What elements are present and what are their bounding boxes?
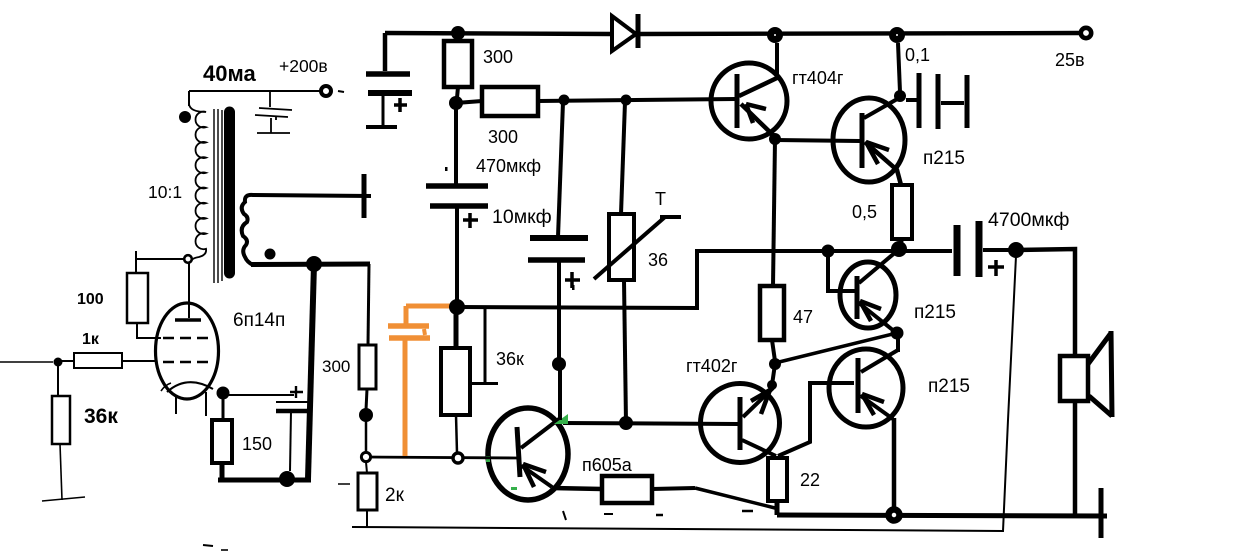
svg-text:+200в: +200в xyxy=(279,56,328,76)
svg-text:40ма: 40ма xyxy=(203,61,256,86)
svg-text:22: 22 xyxy=(800,470,820,490)
svg-text:25в: 25в xyxy=(1055,50,1085,70)
svg-text:п215: п215 xyxy=(923,148,965,169)
svg-text:470мкф: 470мкф xyxy=(476,156,541,176)
svg-text:4700мкф: 4700мкф xyxy=(988,209,1069,231)
svg-text:п605а: п605а xyxy=(582,455,633,475)
svg-text:0,5: 0,5 xyxy=(852,202,877,222)
svg-text:6п14п: 6п14п xyxy=(233,310,285,331)
svg-text:п215: п215 xyxy=(914,302,956,323)
svg-text:Т: Т xyxy=(655,189,666,209)
svg-text:300: 300 xyxy=(488,127,518,147)
svg-text:47: 47 xyxy=(793,307,813,327)
svg-text:100: 100 xyxy=(77,291,104,308)
svg-text:36к: 36к xyxy=(496,349,524,369)
svg-text:0,1: 0,1 xyxy=(905,45,930,65)
svg-text:гт404г: гт404г xyxy=(792,68,844,88)
svg-text:10мкф: 10мкф xyxy=(492,206,552,228)
svg-text:10:1: 10:1 xyxy=(148,182,182,202)
svg-text:36: 36 xyxy=(648,250,668,270)
svg-text:36к: 36к xyxy=(84,405,118,428)
svg-text:300: 300 xyxy=(322,357,350,376)
svg-text:п215: п215 xyxy=(928,376,970,397)
svg-text:гт402г: гт402г xyxy=(686,356,738,376)
svg-text:2к: 2к xyxy=(385,485,405,506)
svg-text:150: 150 xyxy=(242,434,272,454)
svg-text:300: 300 xyxy=(483,47,513,67)
svg-text:1к: 1к xyxy=(82,331,100,348)
